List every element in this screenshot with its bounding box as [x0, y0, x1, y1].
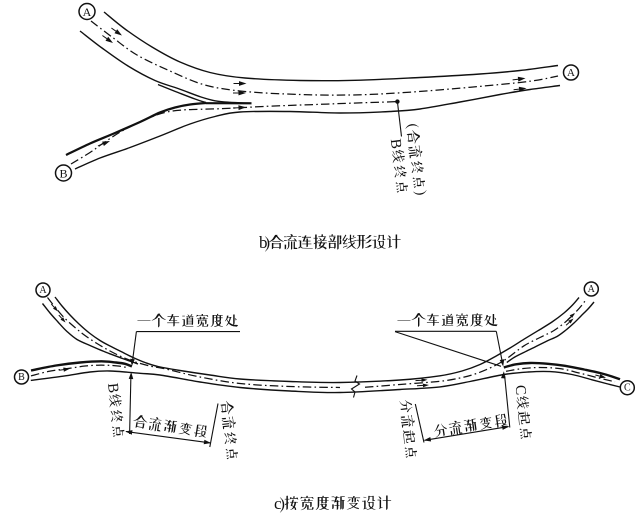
svg-text:A: A	[83, 5, 92, 19]
svg-text:C: C	[624, 383, 631, 394]
svg-text:A: A	[39, 285, 47, 296]
svg-text:B线终点: B线终点	[389, 138, 411, 196]
svg-text:A: A	[567, 67, 575, 79]
svg-text:b)合流连接部线形设计: b)合流连接部线形设计	[259, 234, 403, 252]
svg-text:A: A	[588, 284, 596, 295]
svg-text:B: B	[18, 372, 25, 383]
svg-text:B线终点: B线终点	[106, 382, 127, 439]
svg-text:一个车道宽度处: 一个车道宽度处	[136, 312, 240, 328]
svg-text:合流终点: 合流终点	[219, 399, 240, 462]
svg-text:C线起点: C线起点	[514, 384, 535, 441]
svg-text:分流渐变段: 分流渐变段	[431, 411, 510, 439]
svg-text:c)按宽度渐变设计: c)按宽度渐变设计	[274, 495, 393, 513]
svg-text:B: B	[59, 167, 67, 181]
svg-text:合流渐变段: 合流渐变段	[131, 412, 210, 440]
svg-text:一个车道宽度处: 一个车道宽度处	[396, 312, 499, 328]
